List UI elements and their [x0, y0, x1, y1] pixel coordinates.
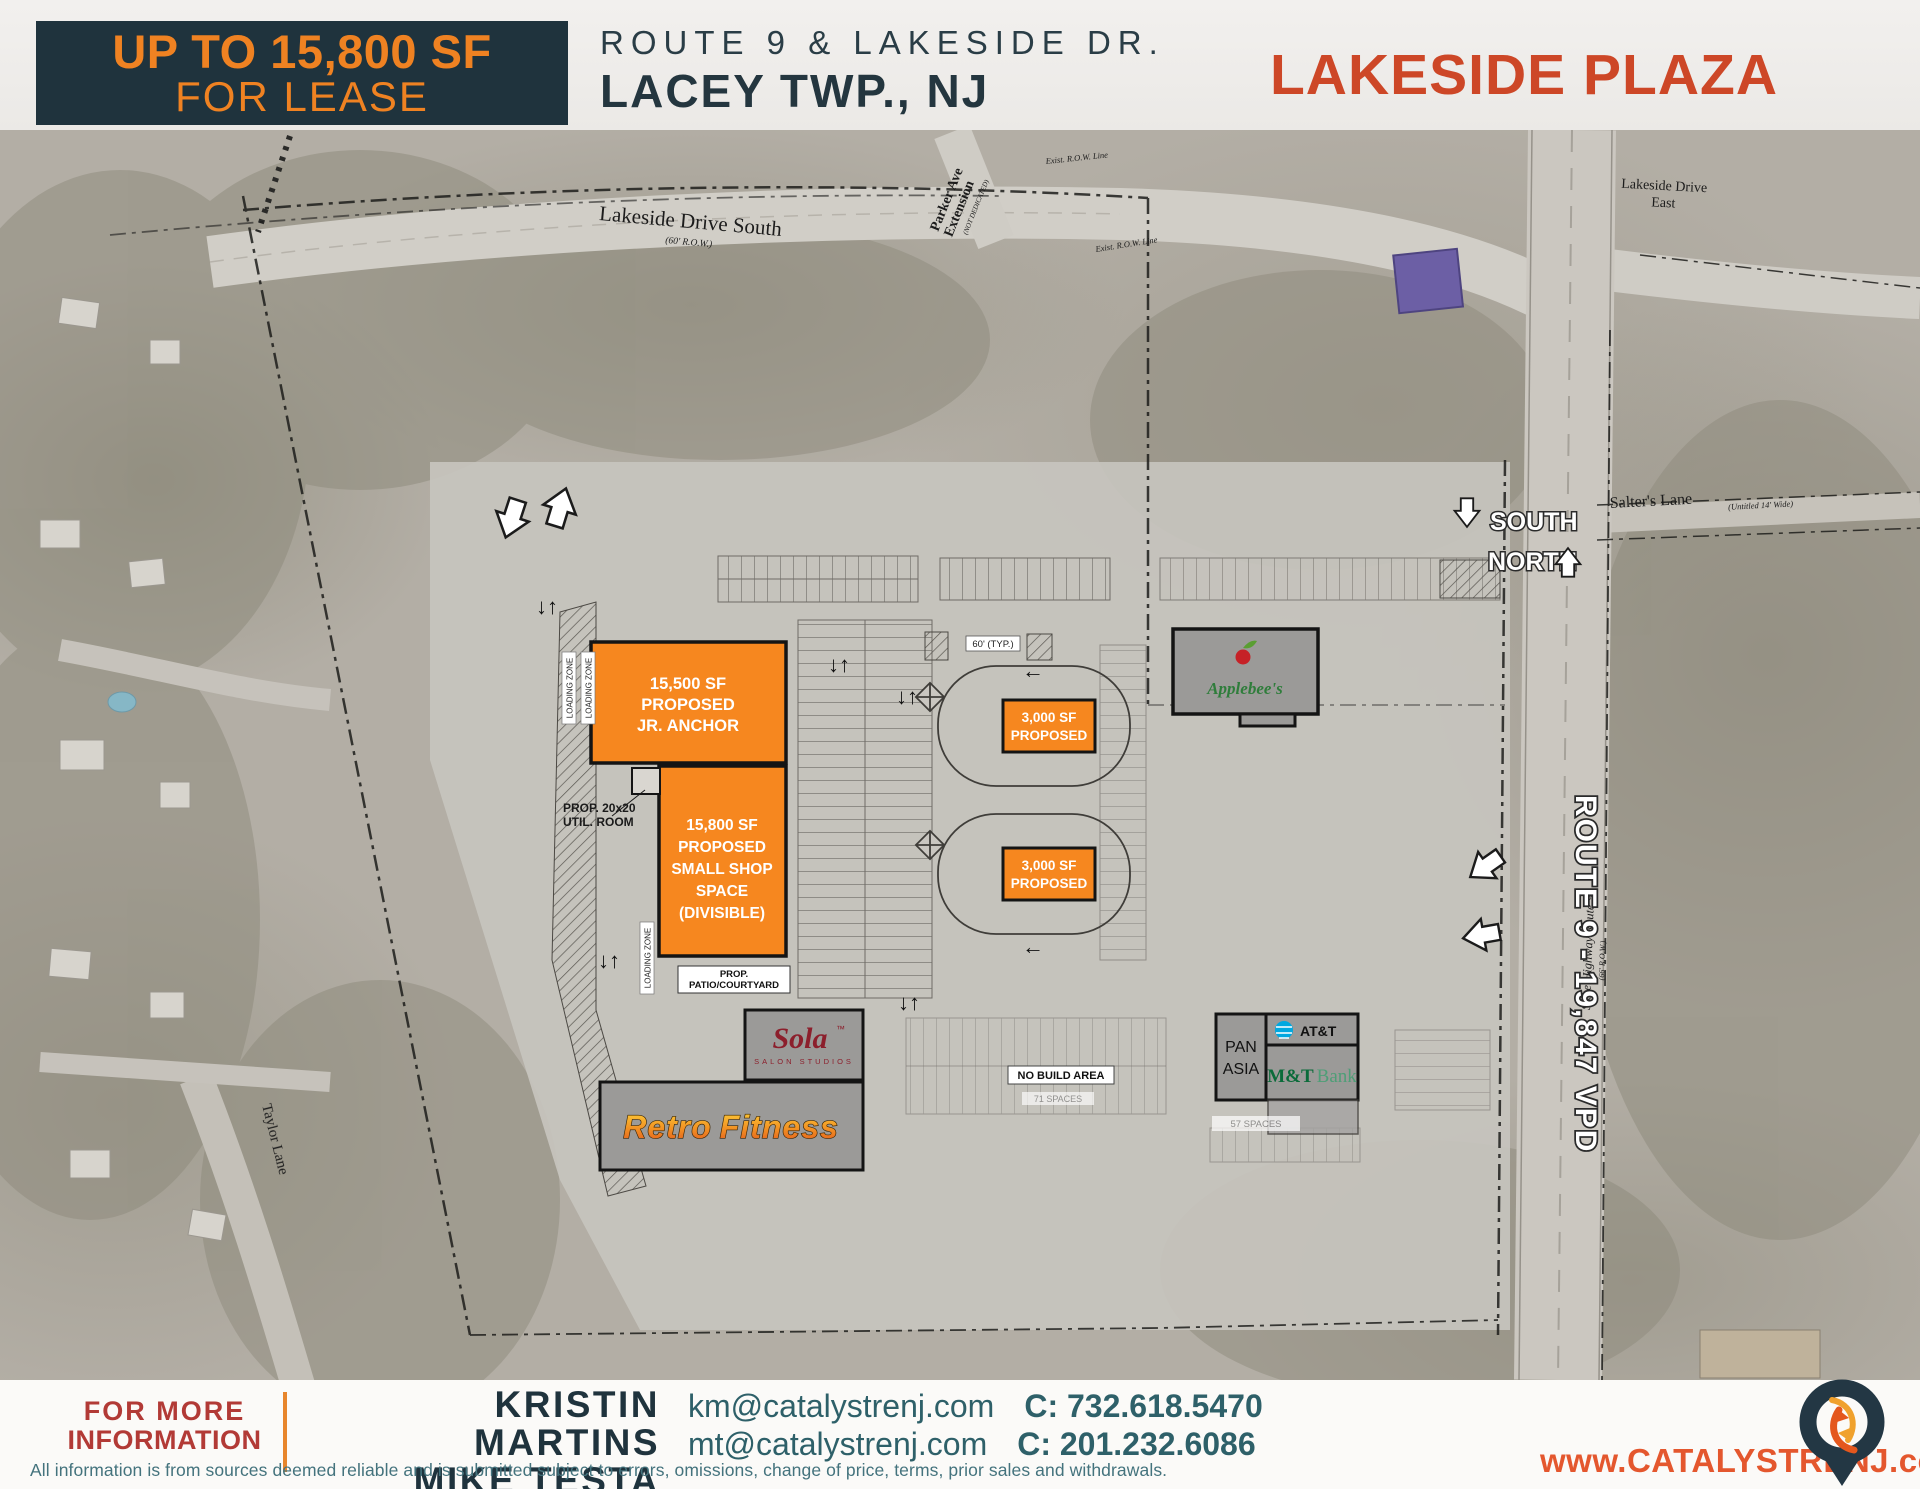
plaza-name: LAKESIDE PLAZA: [1270, 42, 1778, 108]
spaces-57-label: 57 SPACES: [1212, 1116, 1300, 1131]
pad-a-line1: 3,000 SF: [1022, 710, 1077, 725]
svg-text:←: ←: [1022, 934, 1044, 959]
no-build-area-label: NO BUILD AREA: [1008, 1066, 1114, 1084]
svg-text:LOADING ZONE: LOADING ZONE: [566, 658, 575, 718]
small-shop-line4: SPACE: [696, 883, 748, 900]
for-more-information: FOR MORE INFORMATION: [62, 1397, 267, 1455]
lakeside-drive-east-label: Lakeside Drive East: [1620, 177, 1707, 213]
svg-text:Lakeside Drive: Lakeside Drive: [1621, 177, 1708, 196]
svg-text:←: ←: [1022, 658, 1044, 683]
small-shop-line3: SMALL SHOP: [671, 861, 772, 878]
phone-kristin: C: 732.618.5470: [1024, 1388, 1262, 1426]
location-block: ROUTE 9 & LAKESIDE DR. LACEY TWP., NJ: [600, 24, 1165, 118]
phone-mike: C: 201.232.6086: [1017, 1426, 1255, 1464]
svg-text:PATIO/COURTYARD: PATIO/COURTYARD: [689, 980, 779, 991]
jr-anchor-line3: JR. ANCHOR: [637, 717, 739, 735]
sola-subtext: SALON STUDIOS: [754, 1057, 854, 1066]
svg-text:PROP.: PROP.: [720, 969, 748, 980]
svg-text:NO BUILD AREA: NO BUILD AREA: [1018, 1070, 1105, 1082]
sola-tm: ™: [836, 1024, 845, 1034]
patio-label: PROP. PATIO/COURTYARD: [678, 966, 790, 993]
pan-asia-line2: ASIA: [1223, 1061, 1260, 1078]
loading-zone-label-2: LOADING ZONE: [581, 652, 595, 724]
small-shop-line5: (DIVISIBLE): [679, 905, 765, 922]
email-kristin[interactable]: km@catalystrenj.com: [688, 1388, 994, 1426]
svg-text:LOADING ZONE: LOADING ZONE: [644, 928, 653, 988]
lease-badge: UP TO 15,800 SF FOR LEASE: [36, 21, 568, 125]
pad-a-line2: PROPOSED: [1011, 728, 1088, 743]
contact-block: km@catalystrenj.com C: 732.618.5470 mt@c…: [688, 1388, 1263, 1464]
location-cross-streets: ROUTE 9 & LAKESIDE DR.: [600, 24, 1165, 62]
purple-roof-building: [1393, 249, 1463, 313]
loading-zone-label-1: LOADING ZONE: [562, 652, 576, 724]
typ60-label: 60' (TYP.): [966, 636, 1020, 651]
site-plan-svg: 15,500 SF PROPOSED JR. ANCHOR 15,800 SF …: [0, 130, 1920, 1380]
building-pad-b: 3,000 SF PROPOSED: [1003, 848, 1095, 900]
small-shop-line1: 15,800 SF: [686, 817, 758, 834]
svg-text:↓↑: ↓↑: [598, 948, 620, 973]
flyer-page: UP TO 15,800 SF FOR LEASE ROUTE 9 & LAKE…: [0, 0, 1920, 1489]
lease-size: UP TO 15,800 SF: [112, 28, 491, 76]
att-globe-icon: [1275, 1021, 1293, 1039]
header: UP TO 15,800 SF FOR LEASE ROUTE 9 & LAKE…: [0, 0, 1920, 130]
svg-text:↓↑: ↓↑: [898, 990, 920, 1015]
building-small-shop: 15,800 SF PROPOSED SMALL SHOP SPACE (DIV…: [659, 766, 786, 956]
mtb-logo-text: M&TBank: [1267, 1066, 1357, 1087]
south-label: SOUTH: [1490, 508, 1578, 536]
jr-anchor-line2: PROPOSED: [641, 696, 735, 714]
small-shop-line2: PROPOSED: [678, 839, 766, 856]
building-sola: Sola ™ SALON STUDIOS: [745, 1010, 863, 1080]
pan-asia-line1: PAN: [1225, 1039, 1257, 1056]
svg-text:↓↑: ↓↑: [828, 652, 850, 677]
spaces-71-label: 71 SPACES: [1022, 1092, 1094, 1105]
pad-b-line1: 3,000 SF: [1022, 858, 1077, 873]
route9-vpd-label: ROUTE 9 - 19,847 VPD: [1569, 795, 1602, 1153]
location-town: LACEY TWP., NJ: [600, 64, 1165, 118]
svg-text:↓↑: ↓↑: [896, 684, 918, 709]
svg-text:LOADING ZONE: LOADING ZONE: [585, 658, 594, 718]
agent-kristin-martins: KRISTIN MARTINS: [300, 1386, 660, 1462]
lease-status: FOR LEASE: [175, 76, 429, 118]
exist-row-label-1: Exist. R.O.W. Line: [1044, 149, 1108, 166]
svg-text:↓↑: ↓↑: [536, 594, 558, 619]
site-plan-map: 15,500 SF PROPOSED JR. ANCHOR 15,800 SF …: [0, 130, 1920, 1380]
pad-b-line2: PROPOSED: [1011, 876, 1088, 891]
sola-logo-text: Sola: [772, 1022, 827, 1055]
svg-text:60' (TYP.): 60' (TYP.): [972, 639, 1013, 650]
building-applebees: Applebee's: [1173, 629, 1318, 726]
email-mike[interactable]: mt@catalystrenj.com: [688, 1426, 987, 1464]
catalyst-pin-icon: [1808, 1388, 1876, 1486]
building-pad-a: 3,000 SF PROPOSED: [1003, 700, 1095, 752]
svg-text:57 SPACES: 57 SPACES: [1230, 1119, 1281, 1130]
att-logo-text: AT&T: [1300, 1023, 1337, 1039]
jr-anchor-line1: 15,500 SF: [650, 675, 726, 693]
building-retro-fitness: RetroFitness: [600, 1082, 863, 1170]
retro-fitness-logo: RetroFitness: [623, 1109, 839, 1145]
svg-text:East: East: [1651, 195, 1676, 211]
loading-zone-label-3: LOADING ZONE: [640, 922, 654, 994]
catalyst-logo: [1794, 1376, 1890, 1489]
applebees-logo-text: Applebee's: [1206, 679, 1283, 698]
util-room-label1: PROP. 20x20: [563, 801, 636, 815]
footer: FOR MORE INFORMATION KRISTIN MARTINS MIK…: [0, 1380, 1920, 1489]
svg-text:71 SPACES: 71 SPACES: [1034, 1094, 1082, 1104]
disclaimer-text: All information is from sources deemed r…: [30, 1460, 1167, 1481]
util-room-label2: UTIL. ROOM: [563, 815, 634, 829]
building-jr-anchor: 15,500 SF PROPOSED JR. ANCHOR: [591, 642, 786, 763]
